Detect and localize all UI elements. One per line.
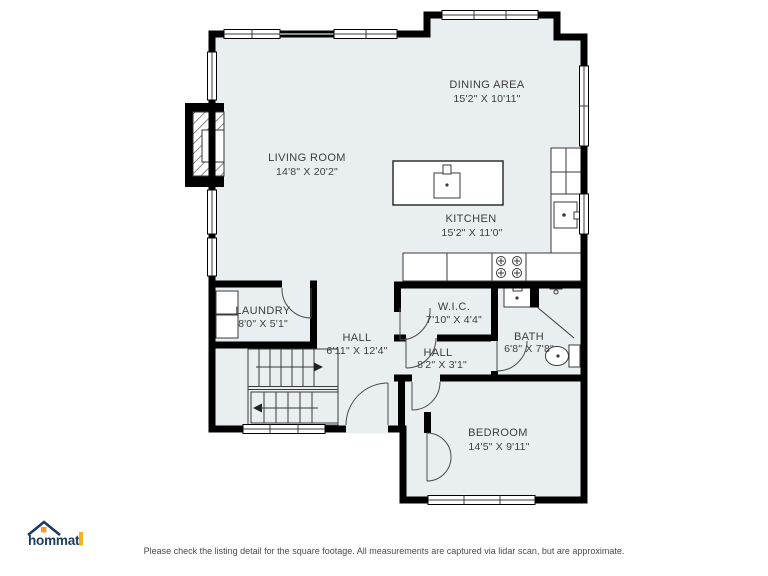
window — [580, 66, 589, 146]
window — [208, 52, 217, 100]
fireplace — [185, 103, 224, 187]
bedroom-name: BEDROOM — [468, 427, 528, 439]
hall-name: HALL — [342, 332, 371, 344]
bath-name: BATH — [514, 331, 544, 343]
bath-dims: 6'8" X 7'8" — [504, 343, 554, 355]
hall-dims: 6'11" X 12'4" — [326, 345, 387, 357]
window — [442, 11, 538, 20]
floor-plan-page: LIVING ROOM 14'8" X 20'2" DINING AREA 15… — [0, 0, 768, 576]
laundry-name: LAUNDRY — [235, 305, 290, 317]
bedroom-dims: 14'5" X 9'11" — [468, 441, 529, 453]
hommati-logo: hommati — [28, 522, 83, 548]
laundry-dims: 8'0" X 5'1" — [238, 318, 288, 330]
dining-area-dims: 15'2" X 10'11" — [453, 93, 520, 105]
hall2-dims: 8'2" X 3'1" — [417, 359, 467, 371]
window — [243, 425, 325, 434]
refrigerator-icon — [551, 148, 581, 194]
logo-window-icon — [41, 527, 47, 533]
room-label-laundry: LAUNDRY 8'0" X 5'1" — [235, 305, 290, 330]
window — [224, 30, 280, 39]
kitchen-sink-icon — [554, 202, 581, 228]
hall2-name: HALL — [423, 347, 452, 359]
wic-dims: 7'10" X 4'4" — [426, 314, 482, 326]
floor-plan-image: LIVING ROOM 14'8" X 20'2" DINING AREA 15… — [0, 0, 768, 576]
living-room-dims: 14'8" X 20'2" — [276, 166, 338, 178]
dining-area-name: DINING AREA — [449, 79, 525, 91]
range-stove-icon — [492, 253, 526, 281]
window — [428, 496, 535, 505]
logo-text: hommati — [28, 533, 83, 548]
window — [580, 194, 589, 234]
window — [334, 30, 397, 39]
living-room-name: LIVING ROOM — [268, 152, 346, 164]
kitchen-name: KITCHEN — [445, 213, 496, 225]
window — [208, 238, 217, 276]
kitchen-island — [393, 161, 503, 205]
wic-name: W.I.C. — [438, 301, 470, 313]
kitchen-dims: 15'2" X 11'0" — [441, 227, 502, 239]
footer-disclaimer: Please check the listing detail for the … — [144, 546, 625, 556]
window — [208, 190, 217, 234]
logo-door-icon — [79, 532, 83, 546]
